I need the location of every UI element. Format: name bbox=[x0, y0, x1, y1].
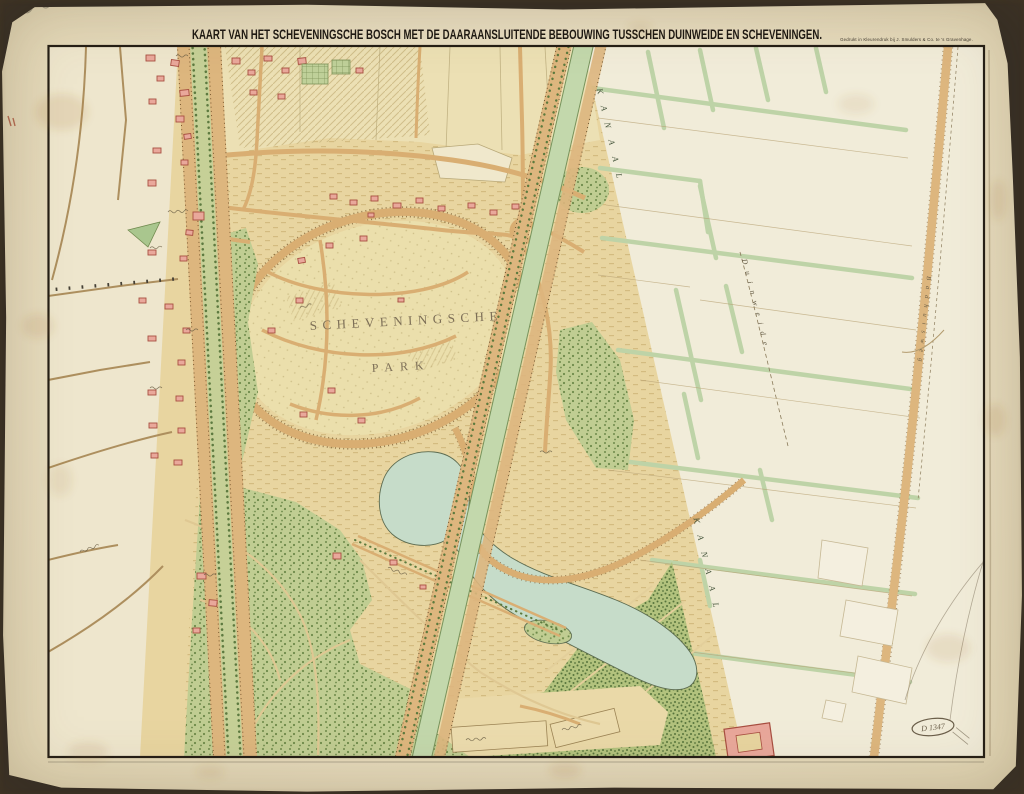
pencil-scribble bbox=[11, 2, 51, 16]
map-artwork: SCHEVENINGSCHE PARK KANAAL KANAAL Duinwe… bbox=[0, 0, 1024, 794]
printer-imprint: Gedrukt in Kleurendruk bij J. Smulders &… bbox=[840, 37, 973, 42]
garden-plot-a bbox=[302, 64, 328, 84]
map-title: KAART VAN HET SCHEVENINGSCHE BOSCH MET D… bbox=[192, 26, 822, 42]
paper-sheet: SCHEVENINGSCHE PARK KANAAL KANAAL Duinwe… bbox=[0, 0, 1024, 794]
garden-plot-b bbox=[332, 60, 350, 74]
red-margin-marks bbox=[8, 116, 15, 126]
paper-crease bbox=[989, 50, 990, 756]
scanned-map-sheet: SCHEVENINGSCHE PARK KANAAL KANAAL Duinwe… bbox=[0, 0, 1024, 794]
